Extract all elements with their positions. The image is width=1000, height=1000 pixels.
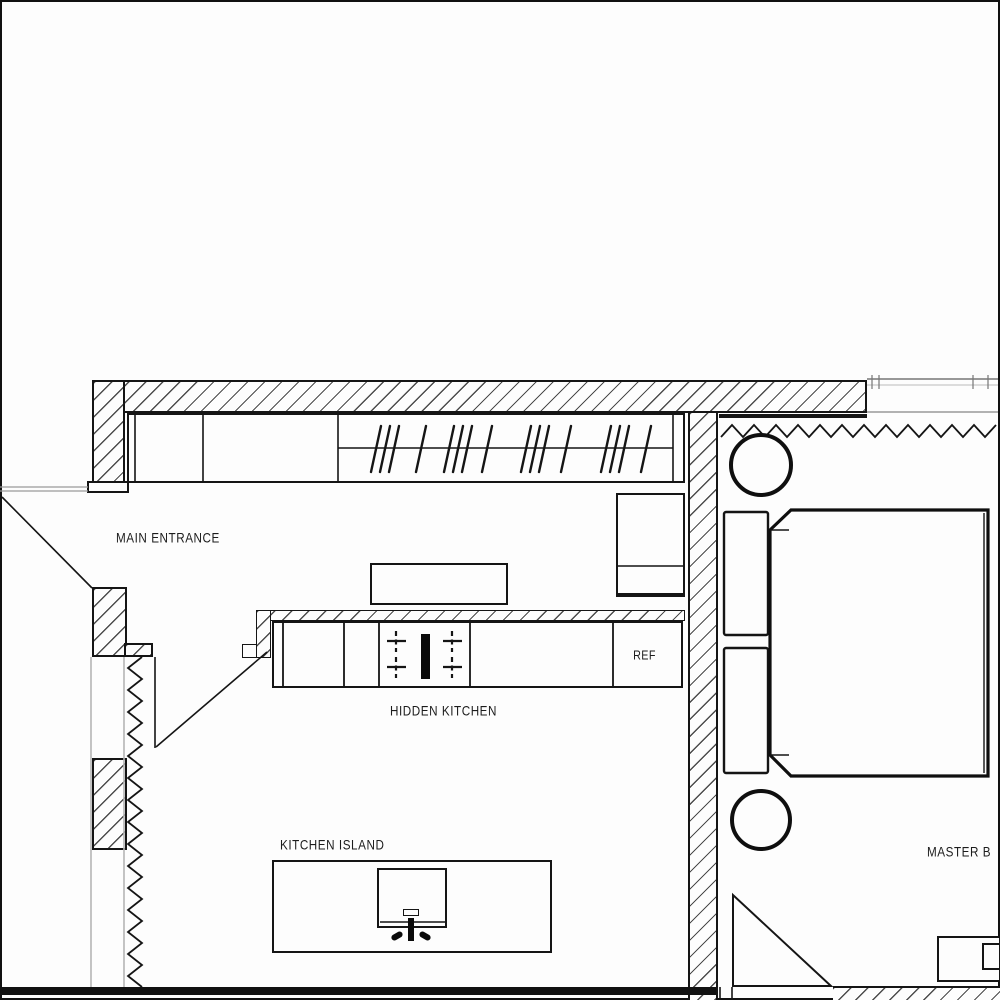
wall-left-pier-upper (92, 587, 127, 657)
wall-bottom-right (833, 986, 1000, 1000)
bed (724, 510, 988, 776)
label-main-entrance: MAIN ENTRANCE (116, 530, 220, 546)
entry-door-swing-icon (2, 497, 92, 588)
wall-left-upper (92, 380, 125, 493)
round-table-top-icon (731, 435, 791, 495)
curtain-top-zigzag-icon (721, 425, 996, 437)
wall-left-pier-lower (92, 758, 127, 850)
wall-bedroom-left (688, 413, 718, 1000)
wall-top (92, 380, 867, 413)
label-master-bedroom: MASTER B (927, 844, 991, 860)
label-refrigerator: REF (613, 648, 676, 663)
wall-left-pier-flange (124, 643, 153, 657)
sink-drain (403, 909, 419, 916)
wardrobe (127, 413, 685, 483)
label-kitchen-island: KITCHEN ISLAND (280, 837, 384, 853)
curtain-left-zigzag-icon (128, 657, 142, 987)
window-top-right (867, 375, 998, 412)
bench (370, 563, 508, 605)
section-cut-bottom (0, 987, 716, 995)
wall-end-cap (87, 481, 129, 493)
floor-plan: MAIN ENTRANCE HIDDEN KITCHEN KITCHEN ISL… (0, 0, 1000, 1000)
pillow-bottom (724, 648, 768, 773)
console-inner (982, 943, 1000, 970)
round-table-bottom-icon (732, 791, 790, 849)
kitchen-door-swing-icon (155, 652, 267, 748)
partition-counter-back (256, 610, 685, 621)
pillow-top (724, 512, 768, 635)
partition-foot (242, 644, 257, 658)
linework-layer (0, 0, 1000, 1000)
partition-end-post (256, 610, 271, 658)
bed-blanket (770, 510, 988, 776)
label-hidden-kitchen: HIDDEN KITCHEN (390, 703, 497, 719)
entry-threshold (0, 487, 88, 491)
tall-cabinet (616, 493, 685, 597)
bedroom-door-swing-icon (720, 895, 831, 1000)
island-sink (377, 868, 447, 928)
